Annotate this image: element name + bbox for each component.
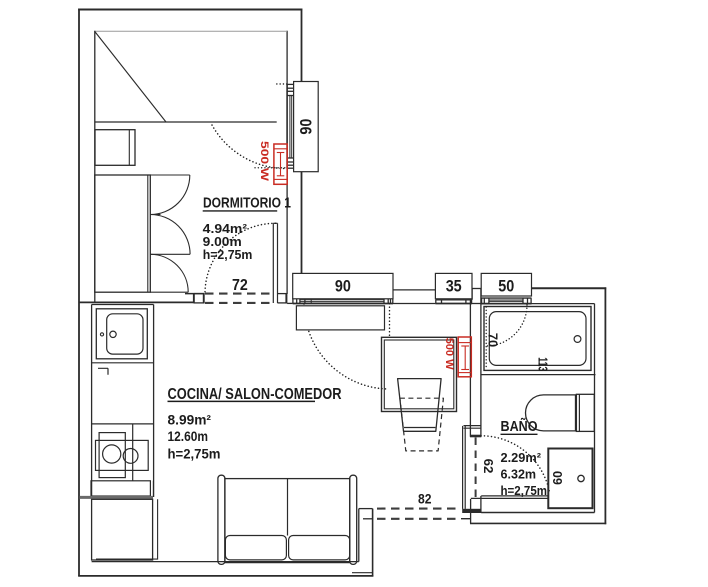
svg-text:500 W: 500 W (258, 141, 270, 182)
svg-text:82: 82 (418, 491, 432, 507)
svg-text:90: 90 (297, 119, 316, 135)
svg-text:6.32m: 6.32m (501, 466, 537, 481)
svg-text:DORMITORIO 1: DORMITORIO 1 (203, 196, 291, 212)
svg-text:90: 90 (335, 277, 351, 296)
svg-text:COCINA/ SALON-COMEDOR: COCINA/ SALON-COMEDOR (168, 386, 342, 403)
svg-text:500 W: 500 W (443, 338, 455, 371)
svg-text:h=2,75m: h=2,75m (168, 447, 221, 462)
svg-text:2.29m²: 2.29m² (501, 450, 542, 465)
svg-text:BAÑO: BAÑO (501, 417, 538, 435)
svg-text:72: 72 (232, 277, 248, 294)
svg-text:62: 62 (481, 459, 496, 474)
svg-text:35: 35 (446, 277, 462, 296)
svg-text:113: 113 (536, 357, 551, 371)
svg-text:h=2,75m: h=2,75m (501, 483, 548, 498)
svg-text:60: 60 (550, 471, 565, 485)
svg-text:12.60m: 12.60m (168, 429, 209, 444)
svg-text:h=2,75m: h=2,75m (203, 247, 253, 262)
svg-text:70: 70 (486, 333, 501, 347)
svg-text:8.99m²: 8.99m² (168, 413, 212, 428)
svg-text:50: 50 (498, 277, 514, 296)
